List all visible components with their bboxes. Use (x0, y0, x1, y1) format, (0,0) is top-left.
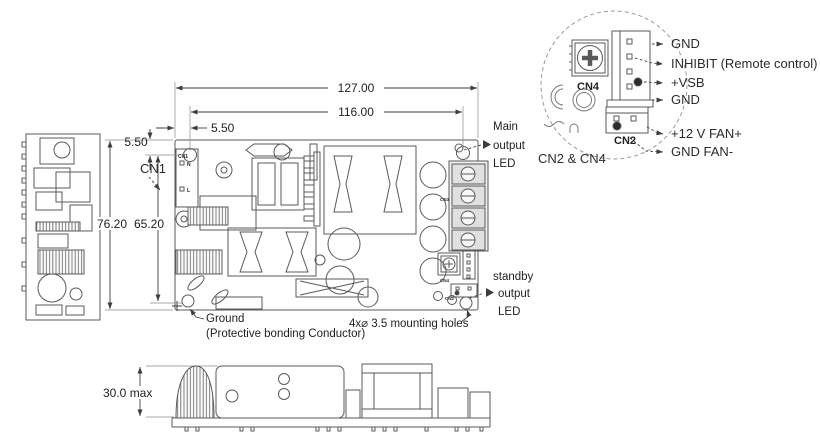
dim-550y-text: 5.50 (124, 135, 148, 149)
bottom-transformer (362, 364, 432, 418)
detail-view: CN4 CN2 (538, 11, 817, 166)
callout-standby-led: standby output LED (470, 271, 534, 318)
detail-cn2-label: CN2 (614, 135, 636, 147)
main-led-line2: output (493, 140, 526, 152)
standby-led-line1: standby (493, 271, 534, 283)
toroid-coil-1 (188, 207, 228, 225)
mechanical-drawing: CN1 N L (0, 0, 820, 432)
callout-cn1: CN1 (140, 161, 166, 190)
cn1-connector: CN1 N L (176, 149, 198, 207)
detail-pin-labels: GND INHIBIT (Remote control) +VSB GND +1… (671, 36, 817, 159)
top-view-board: CN1 N L (172, 140, 488, 311)
callout-mounting-holes: 4x⌀ 3.5 mounting holes (349, 310, 469, 330)
mounting-hole-bottom-left (182, 295, 194, 307)
transformer-center (228, 228, 316, 276)
cn2-connector: CN2 (445, 284, 477, 301)
pin-label-inhibit: INHIBIT (Remote control) (671, 56, 817, 71)
dim-127-text: 127.00 (338, 81, 375, 95)
cn4-board-label: CN4 (440, 278, 449, 283)
pin-label-fan-plus: +12 V FAN+ (671, 126, 742, 141)
detail-cn4-label: CN4 (577, 81, 600, 93)
detail-cn2-connector (606, 107, 648, 133)
transformer-main (324, 146, 416, 234)
detail-caption: CN2 & CN4 (538, 151, 606, 166)
main-led-line3: LED (493, 158, 515, 170)
heatsink (304, 152, 320, 226)
dim-550x-text: 5.50 (211, 121, 235, 135)
bottom-large-block (216, 366, 344, 418)
detail-cn4-rotary (569, 40, 608, 76)
cn1-callout-text: CN1 (140, 161, 166, 176)
detail-signal-header (607, 31, 653, 107)
pin-label-gnd-2: GND (671, 92, 700, 107)
toroid-coil-2 (176, 250, 222, 274)
side-coil-large (38, 250, 84, 274)
output-choke (296, 279, 368, 297)
inductor-hex (246, 144, 292, 156)
bottom-side-view (172, 364, 490, 431)
cn4-rotary-switch: CN4 (438, 251, 475, 283)
pin-label-vsb: +VSB (671, 75, 705, 90)
arrow-icon (483, 140, 491, 149)
dim-7620-text: 76.20 (97, 217, 127, 231)
dim-30max-text: 30.0 max (103, 386, 152, 400)
cn1-pin-n: N (187, 162, 191, 168)
ground-line2: (Protective bonding Conductor) (206, 328, 365, 340)
bottom-pins (185, 427, 483, 431)
cn3-terminal-block: CN3 (440, 161, 488, 251)
dim-hole-pitch-x: 116.00 (191, 105, 462, 119)
arrow-icon (486, 288, 494, 297)
dim-6520-text: 65.20 (134, 217, 164, 231)
dim-overall-width: 127.00 (176, 81, 477, 95)
side-capacitor (38, 274, 66, 302)
left-side-view (22, 134, 100, 320)
drawing-svg: CN1 N L (0, 0, 820, 432)
standby-led-line2: output (498, 288, 531, 300)
pin-label-fan-gnd: GND FAN- (671, 144, 733, 159)
cn1-pin-l: L (187, 188, 190, 194)
side-pins (22, 142, 26, 291)
bottom-coil (176, 366, 214, 418)
side-coil-small (36, 222, 80, 231)
cn3-board-label: CN3 (440, 197, 449, 202)
dim-hole-offset-x: 5.50 (156, 121, 235, 135)
pin-label-gnd-1: GND (671, 36, 700, 51)
mounting-hole-bottom-right (460, 297, 472, 309)
transformer-top (252, 158, 304, 210)
standby-led-line3: LED (498, 306, 520, 318)
dim-116-text: 116.00 (338, 105, 374, 119)
dimensions: 127.00 116.00 5.50 5.50 76.20 65. (95, 81, 478, 417)
main-led-line1: Main (493, 121, 518, 133)
ground-line1: Ground (206, 313, 244, 325)
callout-ground: Ground (Protective bonding Conductor) (190, 309, 365, 340)
cn2-board-label: CN2 (445, 296, 454, 301)
mounting-holes-text: 4x⌀ 3.5 mounting holes (349, 318, 469, 330)
